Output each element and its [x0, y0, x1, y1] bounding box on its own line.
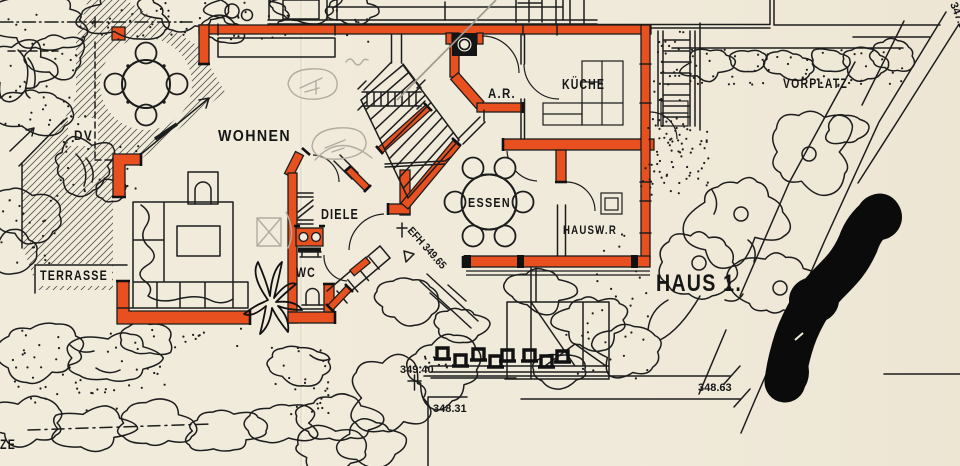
svg-text:TERRASSE: TERRASSE	[40, 268, 108, 283]
svg-text:HAUS 1.: HAUS 1.	[656, 270, 742, 297]
svg-text:HAUSW.R: HAUSW.R	[563, 223, 617, 237]
svg-text:A.R.: A.R.	[488, 86, 516, 101]
svg-text:ESSEN: ESSEN	[468, 196, 511, 210]
svg-text:WOHNEN: WOHNEN	[218, 128, 291, 145]
svg-text:348.31: 348.31	[433, 403, 467, 415]
svg-text:ZE: ZE	[0, 437, 16, 452]
svg-text:VORPLATZ: VORPLATZ	[783, 76, 848, 91]
svg-text:DV: DV	[74, 128, 93, 143]
svg-text:WC: WC	[296, 265, 316, 280]
svg-text:DIELE: DIELE	[321, 207, 359, 223]
svg-text:348.63: 348.63	[698, 382, 732, 394]
svg-text:KÜCHE: KÜCHE	[562, 76, 605, 93]
